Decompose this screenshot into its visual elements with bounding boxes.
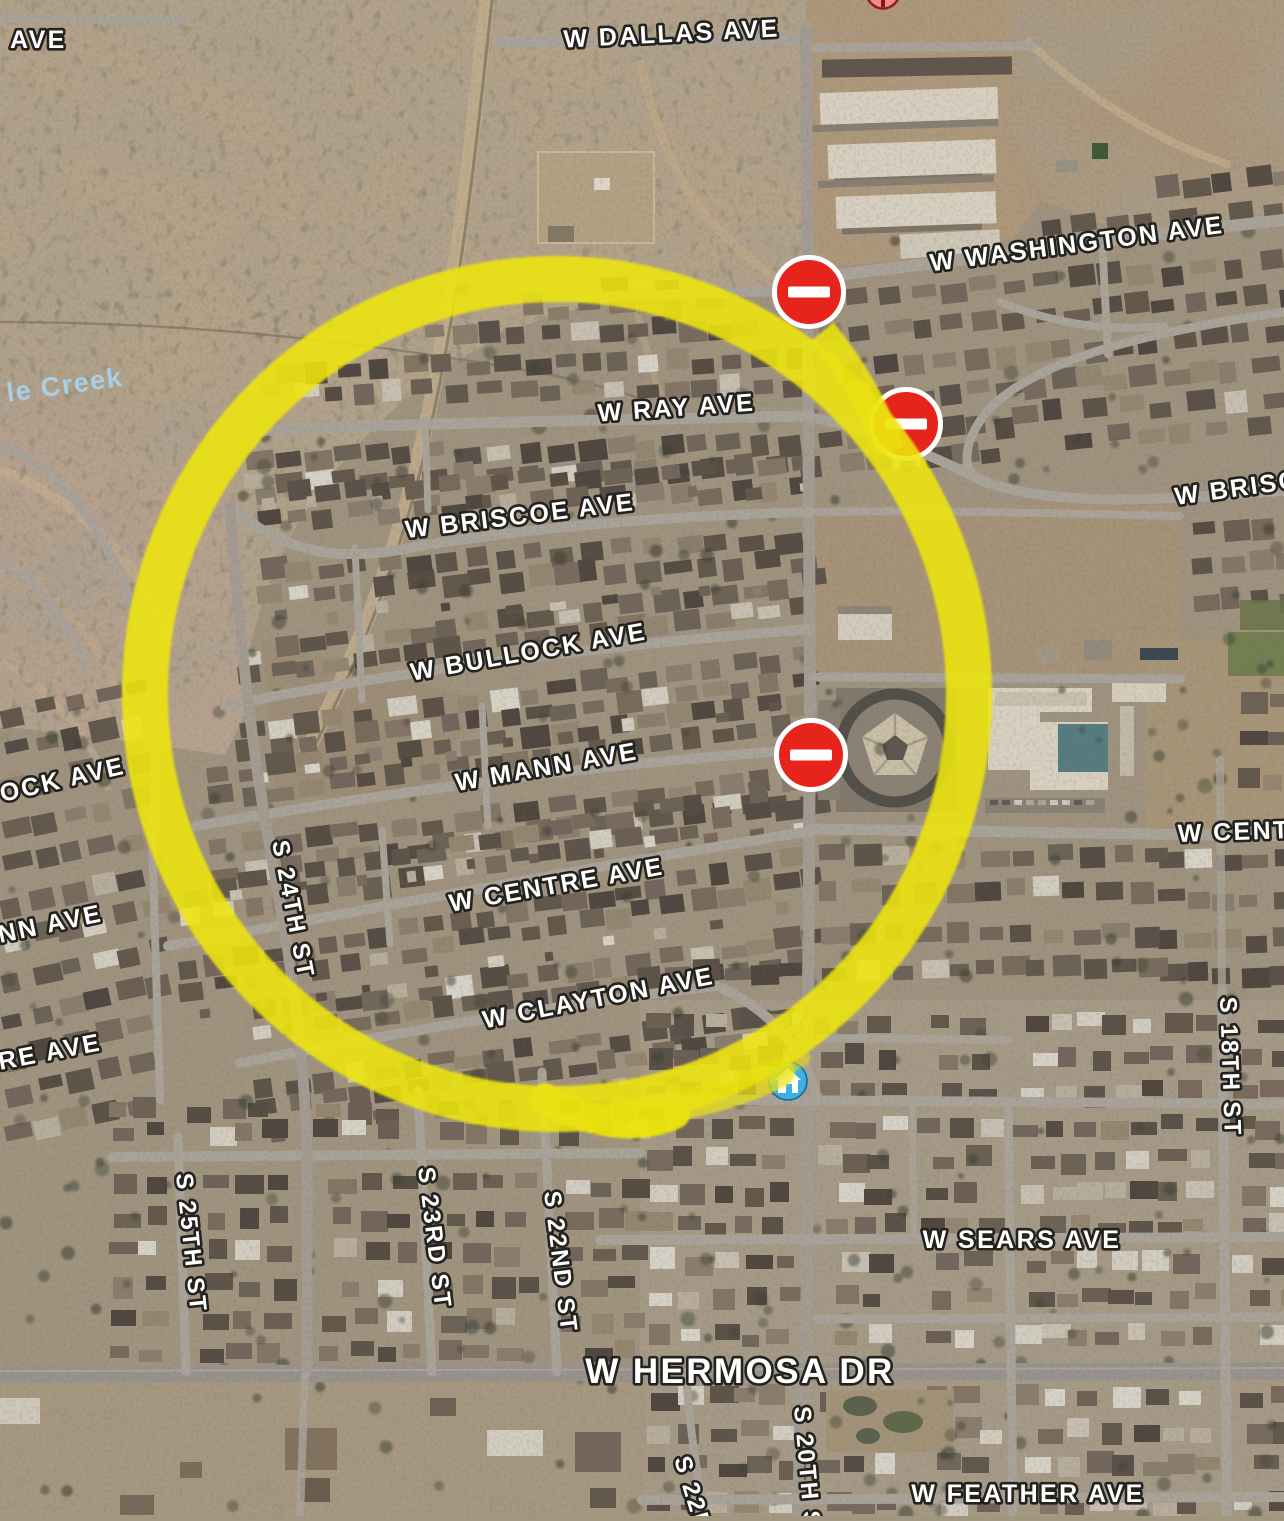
svg-text:W SEARS AVE: W SEARS AVE — [923, 1226, 1122, 1254]
svg-text:AVE: AVE — [10, 26, 67, 54]
svg-text:W FEATHER AVE: W FEATHER AVE — [911, 1480, 1145, 1508]
svg-text:S 18TH ST: S 18TH ST — [1214, 996, 1246, 1137]
svg-text:W HERMOSA DR: W HERMOSA DR — [585, 1352, 894, 1391]
